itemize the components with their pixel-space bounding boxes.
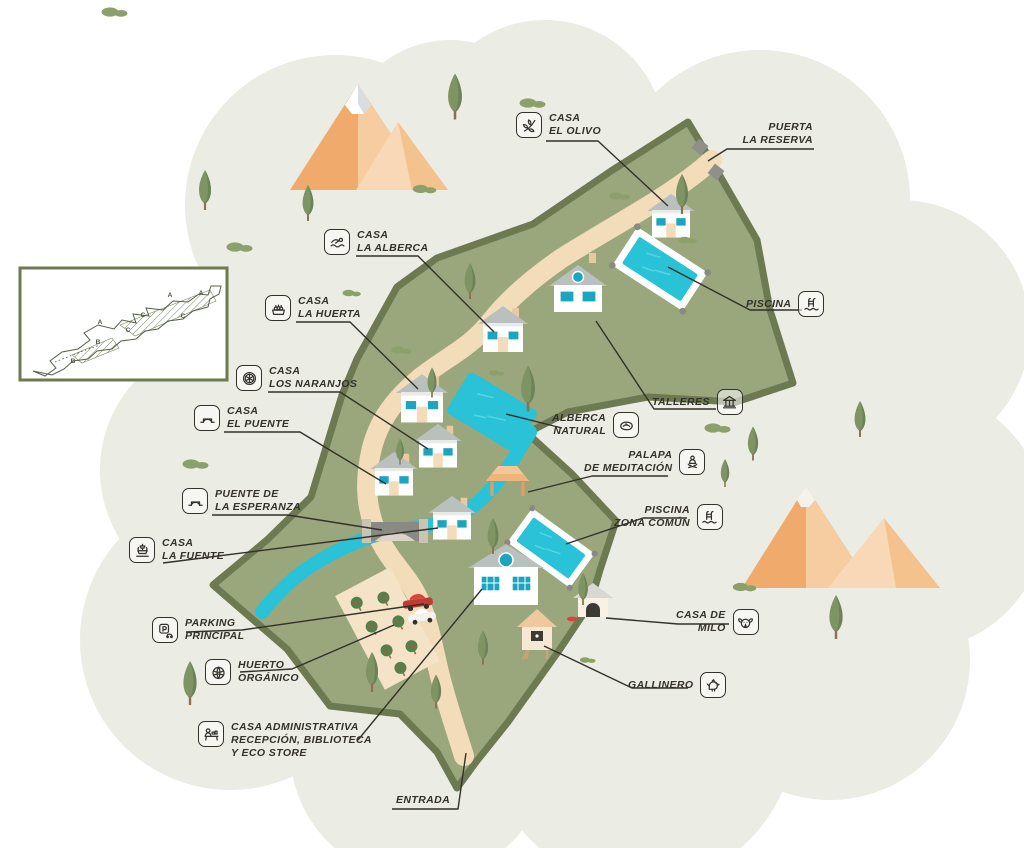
label-casa-la-alberca: CASALA ALBERCA [324,229,428,255]
label-line: PARKING [185,617,244,630]
illustrated-resort-map: A A A C C C B B [0,0,1024,848]
label-line: CASA ADMINISTRATIVA [231,721,372,734]
lettuce-icon [205,659,231,685]
label-piscina: PISCINA [746,291,824,317]
label-parking-principal: PARKINGPRINCIPAL [152,617,244,643]
olive-branch-icon [516,112,542,138]
reception-icon [198,721,224,747]
label-casa-administrativa: CASA ADMINISTRATIVARECEPCIÓN, BIBLIOTECA… [198,721,372,760]
label-line: DE MEDITACIÓN [584,462,672,475]
label-casa-el-olivo: CASAEL OLIVO [516,112,601,138]
label-line: PRINCIPAL [185,630,244,643]
label-line: ALBERCA [552,412,606,425]
inset-plan: A A A C C C B B [20,268,227,380]
pool-ladder-icon [697,504,723,530]
bridge-icon [182,488,208,514]
dog-icon [733,609,759,635]
label-line: EL OLIVO [549,125,601,138]
label-line: ORGÁNICO [238,672,299,685]
label-piscina-zona-comun: PISCINAZONA COMÚN [614,504,723,530]
inset-letter: B [71,358,76,365]
label-entrada: ENTRADA [396,794,450,807]
label-line: CASA [357,229,428,242]
label-line: CASA DE [676,609,726,622]
label-line: ZONA COMÚN [614,517,690,530]
label-line: PUERTA [725,121,813,134]
label-line: TALLERES [652,396,710,409]
label-line: LA ALBERCA [357,242,428,255]
label-casa-de-milo: CASA DEMILO [676,609,759,635]
label-line: CASA [269,365,357,378]
label-line: MILO [676,622,726,635]
inset-letter: C [126,327,131,334]
label-line: PISCINA [614,504,690,517]
label-line: LA ESPERANZA [215,501,301,514]
label-line: LOS NARANJOS [269,378,357,391]
parking-icon [152,617,178,643]
label-gallinero: GALLINERO [628,672,726,698]
label-casa-el-puente: CASAEL PUENTE [194,405,289,431]
label-huerto-organico: HUERTOORGÁNICO [205,659,299,685]
label-line: CASA [162,537,224,550]
label-alberca-natural: ALBERCANATURAL [552,412,639,438]
label-line: PALAPA [584,449,672,462]
label-line: HUERTO [238,659,299,672]
vegetable-crate-icon [265,295,291,321]
label-palapa-de-meditacion: PALAPADE MEDITACIÓN [584,449,705,475]
label-casa-la-fuente: CASALA FUENTE [129,537,224,563]
swimmer-icon [324,229,350,255]
label-line: EL PUENTE [227,418,289,431]
label-line: PISCINA [746,298,791,311]
pool-ladder-icon [798,291,824,317]
inset-letter: C [141,312,146,319]
label-puerta-la-reserva: PUERTALA RESERVA [725,121,813,147]
chicken-icon [700,672,726,698]
bridge-icon [194,405,220,431]
label-line: RECEPCIÓN, BIBLIOTECA [231,734,372,747]
label-puente-de-la-esperanza: PUENTE DELA ESPERANZA [182,488,301,514]
natural-pool-icon [613,412,639,438]
label-talleres: TALLERES [652,389,743,415]
inset-letter: C [181,313,186,320]
inset-letter: A [98,319,103,326]
label-line: PUENTE DE [215,488,301,501]
label-casa-la-huerta: CASALA HUERTA [265,295,361,321]
label-line: CASA [227,405,289,418]
label-line: NATURAL [552,425,606,438]
label-line: GALLINERO [628,679,693,692]
workshop-icon [717,389,743,415]
inset-letter: A [168,292,173,299]
label-line: ENTRADA [396,794,450,807]
label-line: LA HUERTA [298,308,361,321]
map-artwork: A A A C C C B B [0,0,1024,848]
label-line: Y ECO STORE [231,747,372,760]
orange-slice-icon [236,365,262,391]
inset-letter: B [96,339,101,346]
label-line: LA RESERVA [725,134,813,147]
inset-letter: A [199,290,204,297]
label-line: LA FUENTE [162,550,224,563]
label-line: CASA [549,112,601,125]
label-casa-los-naranjos: CASALOS NARANJOS [236,365,357,391]
fountain-icon [129,537,155,563]
meditation-icon [679,449,705,475]
label-line: CASA [298,295,361,308]
